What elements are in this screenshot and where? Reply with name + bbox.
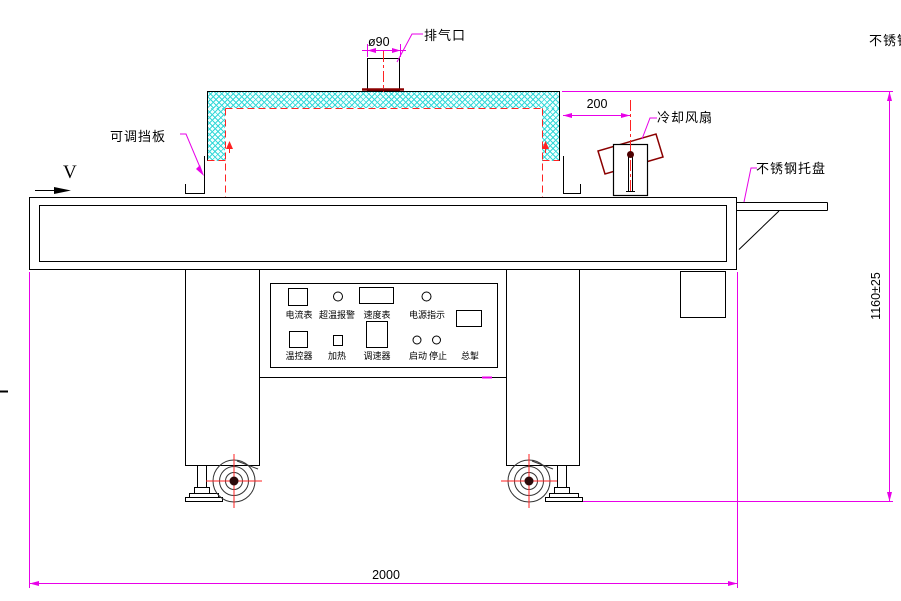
oven-hood-outline <box>208 92 560 162</box>
caster-hub <box>525 477 534 486</box>
label-over-temp-alarm: 超温报警 <box>319 308 355 321</box>
label-stop: 停止 <box>429 349 447 362</box>
fan-hub-dot <box>627 151 634 158</box>
heater-box <box>334 336 343 346</box>
callout-stainless-top-right: 不锈钢 <box>869 30 901 49</box>
start-button <box>413 336 421 344</box>
belt-direction-arrow <box>35 187 71 194</box>
drawing-linework <box>0 0 901 601</box>
baffle-bracket-left <box>186 156 205 194</box>
foot-left <box>186 466 223 502</box>
baffle-bracket-right <box>564 156 581 194</box>
cooling-fan <box>598 100 663 196</box>
tray-support <box>739 211 779 250</box>
label-speedometer: 速度表 <box>363 308 390 321</box>
leg-right <box>507 270 580 466</box>
table-body <box>30 198 737 270</box>
label-ammeter: 电流表 <box>285 308 312 321</box>
technical-drawing-canvas: ø90 排气口 不锈钢 可调挡板 200 冷却风扇 不锈钢托盘 V 1160±2… <box>0 0 901 601</box>
dim-1160 <box>562 92 893 502</box>
power-indicator-lamp <box>422 292 431 301</box>
dim-label-1160: 1160±25 <box>869 256 883 336</box>
label-heater: 加热 <box>328 349 346 362</box>
leg-left <box>186 270 260 466</box>
label-start: 启动 <box>409 349 427 362</box>
label-power-indicator: 电源指示 <box>409 308 445 321</box>
dim-label-2000: 2000 <box>356 568 416 582</box>
temp-controller-box <box>290 332 308 348</box>
dim-label-200: 200 <box>579 97 615 111</box>
callout-cooling-fan: 冷却风扇 <box>657 107 713 126</box>
label-master-switch: 总掣 <box>461 349 479 362</box>
master-switch-box <box>457 311 482 327</box>
tray-outline <box>737 203 828 211</box>
speed-regulator-box <box>367 322 388 348</box>
callout-stainless-tray: 不锈钢托盘 <box>756 158 826 177</box>
ammeter-box <box>289 289 308 306</box>
belt-direction-label: V <box>63 162 77 184</box>
speedometer-box <box>360 288 394 304</box>
table-body-inner <box>40 206 727 262</box>
label-temp-controller: 温控器 <box>285 349 312 362</box>
motor-box <box>681 272 726 318</box>
dim-label-phi90: ø90 <box>368 35 390 49</box>
callout-adjustable-baffle: 可调挡板 <box>110 126 166 145</box>
caster-hub <box>230 477 239 486</box>
stop-button <box>433 336 441 344</box>
over-temp-alarm-lamp <box>334 292 343 301</box>
callout-exhaust-port: 排气口 <box>424 25 466 44</box>
label-speed-regulator: 调速器 <box>363 349 390 362</box>
hidden-lines <box>208 51 560 197</box>
foot-right <box>546 466 583 502</box>
